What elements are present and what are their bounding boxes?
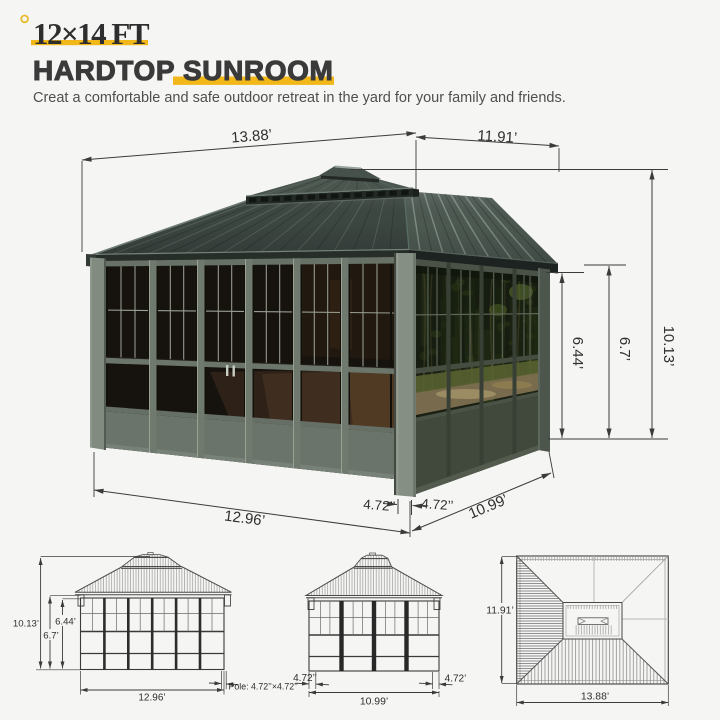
svg-text:6.7’: 6.7’ — [43, 631, 58, 642]
svg-text:12.96’: 12.96’ — [138, 693, 165, 704]
svg-text:10.99’: 10.99’ — [360, 697, 388, 708]
svg-text:10.99’: 10.99’ — [466, 491, 510, 522]
svg-text:12.96’: 12.96’ — [223, 507, 266, 529]
svg-text:4.72’’: 4.72’’ — [421, 496, 454, 513]
svg-text:13.88’: 13.88’ — [581, 692, 609, 703]
svg-text:13.88’: 13.88’ — [231, 126, 273, 146]
svg-text:6.44’: 6.44’ — [569, 337, 586, 370]
svg-text:11.91’: 11.91’ — [477, 127, 518, 147]
svg-text:6.44’: 6.44’ — [55, 617, 76, 628]
svg-text:4.72’: 4.72’ — [445, 674, 467, 685]
svg-text:10.13’: 10.13’ — [660, 326, 677, 367]
svg-text:11.91’: 11.91’ — [486, 606, 514, 617]
svg-text:10.13’: 10.13’ — [13, 619, 39, 630]
svg-text:6.7’: 6.7’ — [616, 337, 633, 361]
svg-text:Pole: 4.72’’×4.72’’: Pole: 4.72’’×4.72’’ — [229, 682, 298, 692]
svg-text:4.72’’: 4.72’’ — [293, 673, 317, 684]
svg-text:4.72’’: 4.72’’ — [363, 497, 396, 514]
